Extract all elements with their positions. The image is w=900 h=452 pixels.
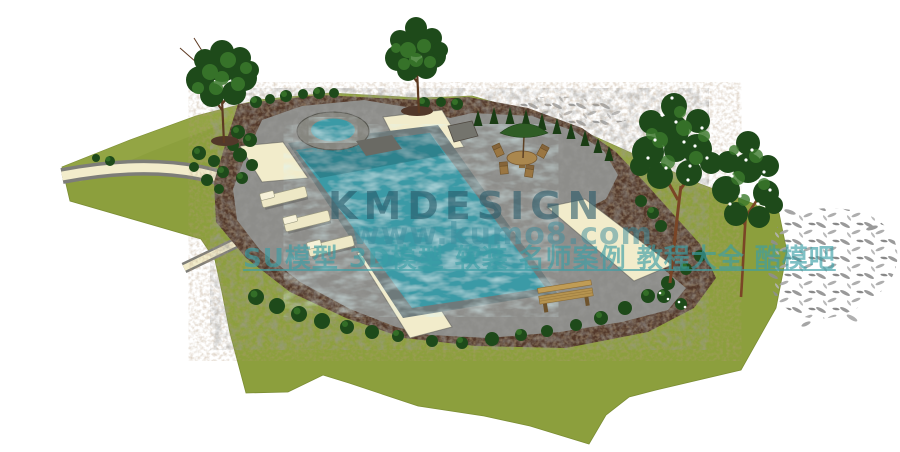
dining-chair	[499, 162, 508, 175]
pool-landscape-rendering: KMDESIGN www.kumo8.com SU模型 3D模型 软装 名师案例…	[0, 0, 900, 452]
umbrella-pole	[523, 136, 524, 158]
scene-canvas	[0, 0, 900, 452]
sketch-foliage-large	[768, 208, 898, 328]
dining-chair	[524, 165, 534, 178]
spa-water	[311, 119, 355, 142]
dining-table	[507, 151, 537, 165]
